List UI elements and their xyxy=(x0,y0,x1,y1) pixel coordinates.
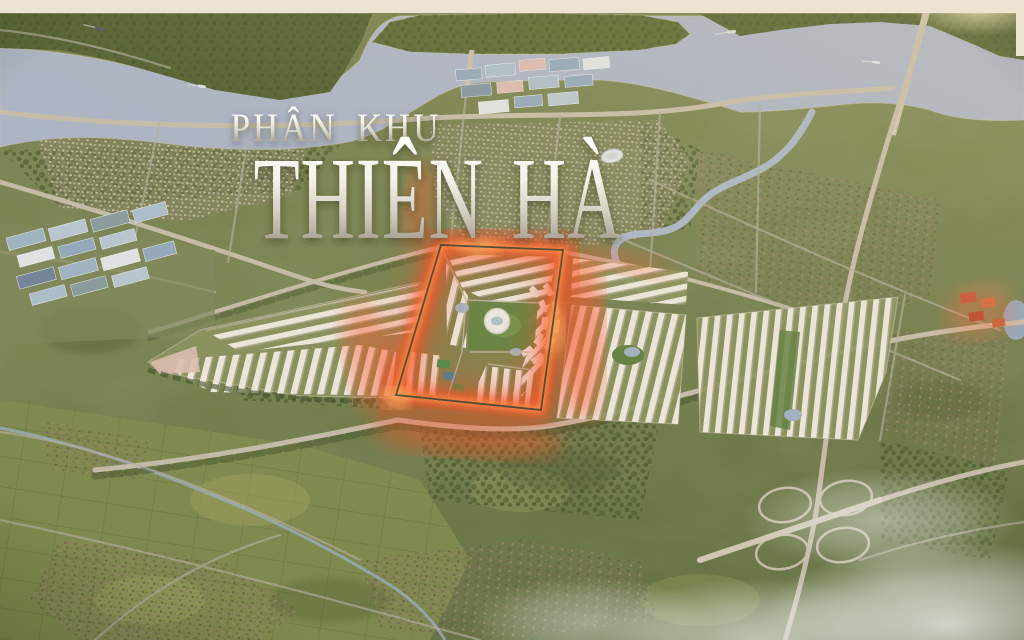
frame-border-top xyxy=(0,0,1024,13)
aerial-scene: PHÂN KHU THIÊN HÀ xyxy=(0,0,1024,640)
masterplan-render: PHÂN KHU THIÊN HÀ xyxy=(0,0,1024,640)
film-grain xyxy=(0,0,1024,640)
title-name: THIÊN HÀ xyxy=(254,134,623,264)
frame-border-right xyxy=(1016,0,1024,56)
